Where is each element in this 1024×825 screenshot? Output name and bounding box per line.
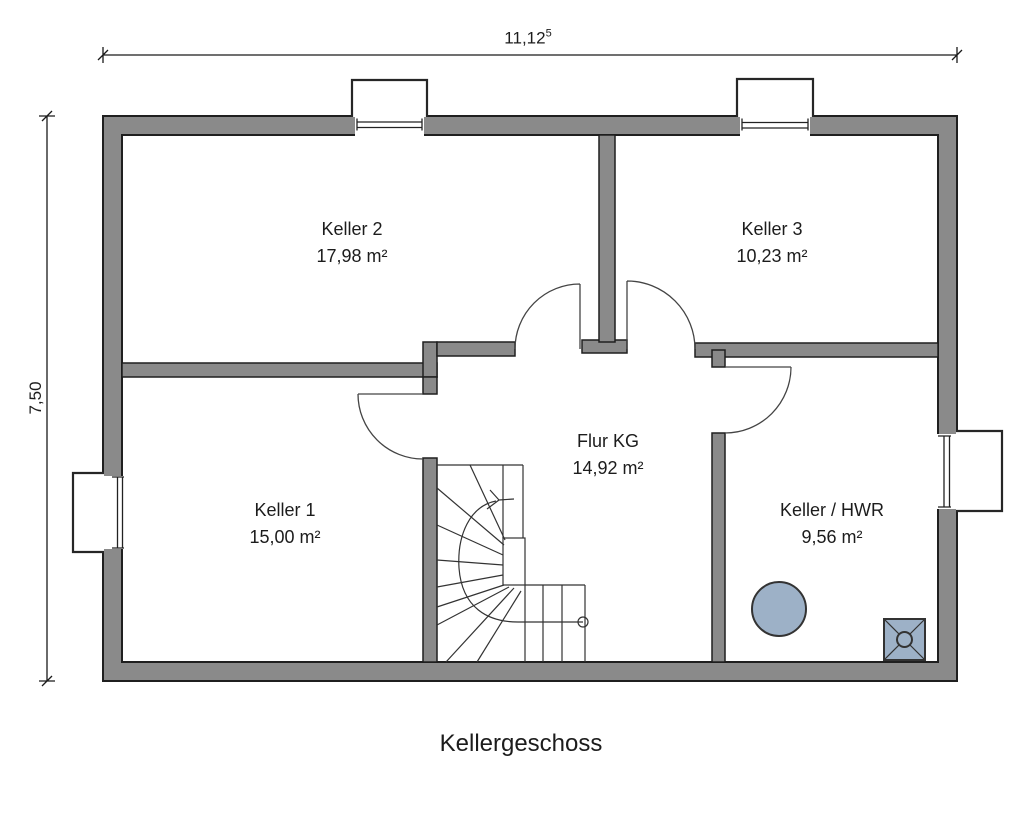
drawing-title: Kellergeschoss [440,730,603,758]
dimension-width-value: 11,12 [504,28,545,47]
room-name: Keller 1 [249,497,320,524]
room-name: Keller 3 [736,216,807,243]
stair-direction-arrow-icon [487,490,514,509]
room-area: 10,23 m² [736,243,807,270]
window-top-right [737,79,813,137]
window-right [936,431,1002,511]
room-label-keller-hwr: Keller / HWR 9,56 m² [780,497,884,551]
door-keller3 [627,281,695,349]
window-top-left [352,80,427,137]
boiler-circle [752,582,806,636]
room-area: 14,92 m² [572,455,643,482]
staircase [437,465,588,662]
door-keller1 [358,394,423,459]
door-keller2 [515,284,580,349]
room-name: Keller 2 [316,216,387,243]
dimension-width-label: 11,125 [504,28,551,49]
dimension-height-value: 7,50 [26,381,45,414]
dimension-height-label: 7,50 [26,381,46,414]
floor-drain [884,619,925,660]
room-label-keller3: Keller 3 10,23 m² [736,216,807,270]
interior-walls [122,135,938,662]
floor-plan-drawing [0,0,1024,825]
room-label-flur-kg: Flur KG 14,92 m² [572,428,643,482]
door-keller-hwr [725,367,791,433]
dimension-line-width [98,47,962,63]
outer-walls [103,116,957,681]
room-name: Keller / HWR [780,497,884,524]
room-area: 17,98 m² [316,243,387,270]
room-name: Flur KG [572,428,643,455]
window-left [73,473,124,552]
room-area: 9,56 m² [780,524,884,551]
room-label-keller2: Keller 2 17,98 m² [316,216,387,270]
floor-plan-page: Keller 2 17,98 m² Keller 3 10,23 m² Kell… [0,0,1024,825]
room-label-keller1: Keller 1 15,00 m² [249,497,320,551]
dimension-width-superscript: 5 [546,28,552,40]
room-area: 15,00 m² [249,524,320,551]
